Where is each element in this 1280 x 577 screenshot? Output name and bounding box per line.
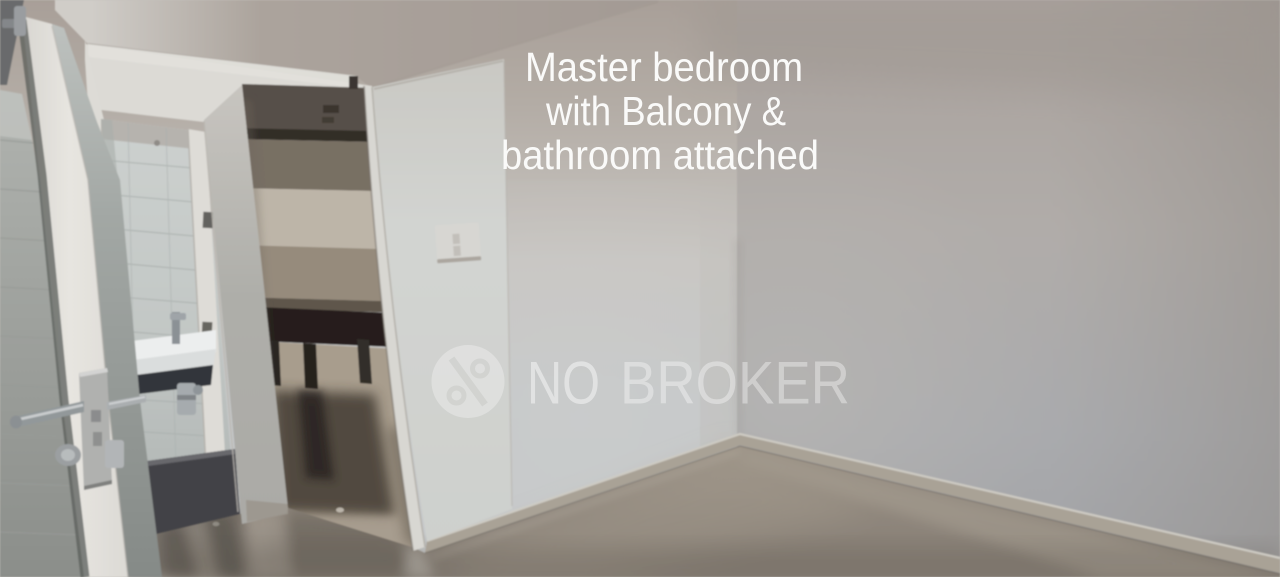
svg-text:with Balcony &: with Balcony &: [545, 88, 786, 134]
svg-text:BROKER: BROKER: [620, 350, 850, 417]
svg-text:NO: NO: [527, 350, 600, 417]
svg-text:Master bedroom: Master bedroom: [525, 44, 803, 90]
svg-text:bathroom attached: bathroom attached: [501, 132, 819, 178]
